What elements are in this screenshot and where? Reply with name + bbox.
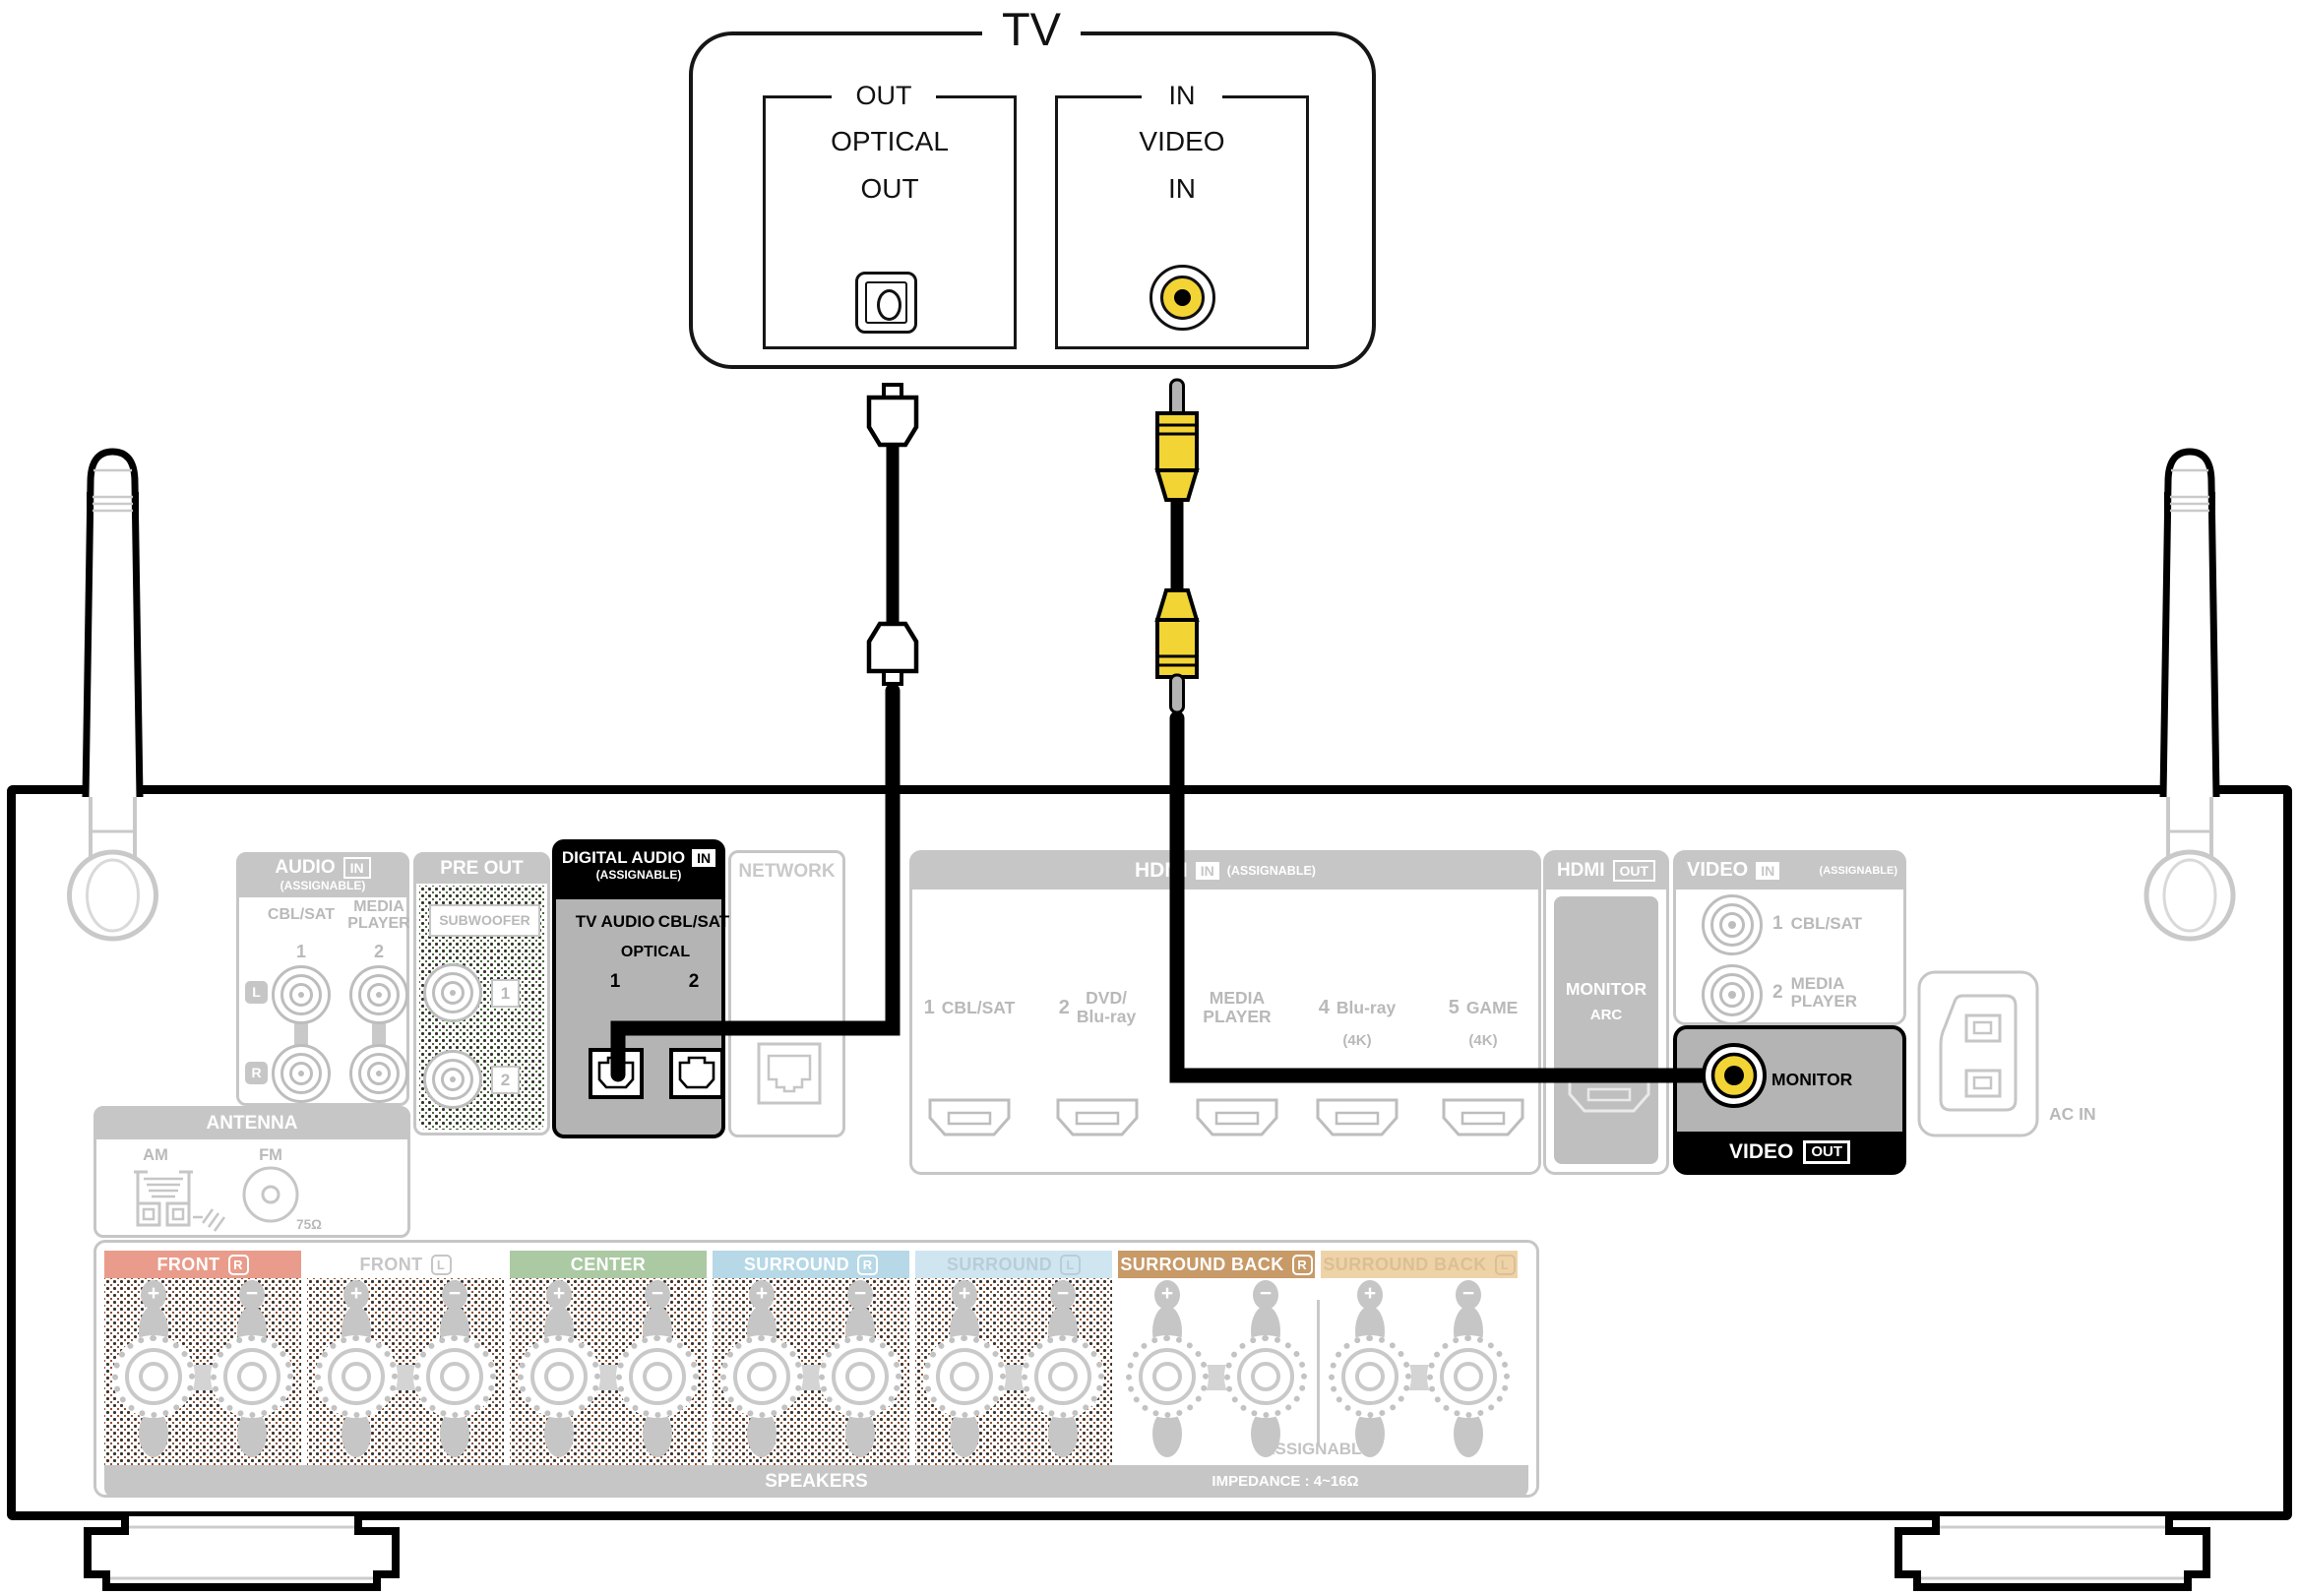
subwoofer-jack-1 bbox=[423, 963, 482, 1022]
video-in-jack-2 bbox=[1702, 964, 1763, 1025]
terminal-area: + − bbox=[307, 1278, 504, 1465]
antenna-header: ANTENNA bbox=[95, 1108, 408, 1139]
binding-post-positive: + bbox=[512, 1280, 606, 1465]
hdmi-connector-icon bbox=[1440, 1097, 1526, 1138]
toslink-plug-down bbox=[869, 624, 916, 684]
terminal-area: + − bbox=[915, 1278, 1112, 1465]
tv-optical-label-line1: OPTICAL bbox=[763, 126, 1017, 157]
speaker-channel-header: FRONT L bbox=[307, 1251, 504, 1278]
hdmi-port-dvd-bluray: 2 DVD/Blu-ray bbox=[1028, 987, 1166, 1050]
rca-jack-cbl-sat-right bbox=[272, 1044, 331, 1103]
channel-badge: R bbox=[857, 1255, 878, 1275]
digital-audio-in-header: DIGITAL AUDIO IN (ASSIGNABLE) bbox=[555, 842, 722, 899]
binding-post-positive: + bbox=[106, 1280, 201, 1465]
subwoofer-jack-2 bbox=[423, 1050, 482, 1109]
section-hdmi-out: HDMI OUT MONITOR ARC bbox=[1543, 850, 1669, 1175]
port-sub: (4K) bbox=[1414, 1032, 1552, 1050]
network-title: NETWORK bbox=[731, 861, 842, 883]
chassis-foot-left bbox=[88, 1516, 396, 1587]
audio-in-header: AUDIO IN (ASSIGNABLE) bbox=[238, 854, 407, 897]
hdmi-connector-icon bbox=[1054, 1097, 1141, 1138]
surround-back-divider bbox=[1317, 1300, 1320, 1445]
hdmi-port-bluray-4k: 4 Blu-ray (4K) bbox=[1288, 987, 1426, 1050]
speaker-channel-header: FRONT R bbox=[104, 1251, 301, 1278]
port-number: 1 bbox=[924, 997, 935, 1019]
tv-optical-out-port-icon bbox=[855, 272, 917, 334]
port-number: 2 bbox=[1772, 982, 1783, 1004]
monitor-jack-label: MONITOR bbox=[1771, 1070, 1904, 1090]
left-channel-badge: L bbox=[245, 981, 268, 1004]
channel-label: SURROUND bbox=[947, 1255, 1052, 1275]
port-number: 1 bbox=[1772, 913, 1783, 935]
speaker-channel-header: CENTER bbox=[510, 1251, 707, 1278]
tv-receiver-connection-diagram: AUDIO IN (ASSIGNABLE) CBL/SAT MEDIA PLAY… bbox=[0, 0, 2299, 1596]
port-label: MEDIA bbox=[1210, 988, 1265, 1008]
video-in-header: VIDEO IN (ASSIGNABLE) bbox=[1675, 852, 1904, 890]
toslink-plug-up bbox=[869, 385, 916, 445]
hdmi-connector-icon bbox=[1566, 1074, 1652, 1115]
digital-audio-title: DIGITAL AUDIO bbox=[562, 848, 685, 868]
speaker-channel-front-l: FRONT L + − bbox=[307, 1251, 504, 1465]
speaker-channel-surround-back-r: SURROUND BACK R + − bbox=[1118, 1251, 1315, 1465]
am-label: AM bbox=[126, 1146, 185, 1165]
in-badge: IN bbox=[692, 849, 715, 867]
hdmi-connector-icon bbox=[1194, 1097, 1280, 1138]
assignable-note: (ASSIGNABLE) bbox=[238, 879, 407, 893]
hdmi-connector-icon bbox=[1314, 1097, 1400, 1138]
hdmi-title: HDMI bbox=[1135, 859, 1188, 883]
monitor-label: MONITOR bbox=[1554, 979, 1658, 1000]
tv-title: TV bbox=[982, 0, 1081, 61]
channel-label: SURROUND bbox=[744, 1255, 849, 1275]
hdmi-connector-icon bbox=[926, 1097, 1013, 1138]
channel-badge: L bbox=[431, 1255, 452, 1275]
channel-badge: R bbox=[228, 1255, 249, 1275]
binding-post-negative: − bbox=[1218, 1280, 1313, 1465]
assignable-note: (ASSIGNABLE) bbox=[1820, 865, 1897, 877]
in-badge: IN bbox=[1196, 862, 1219, 880]
channel-badge: L bbox=[1495, 1255, 1516, 1275]
channel-badge: L bbox=[1060, 1255, 1081, 1275]
right-channel-badge: R bbox=[245, 1062, 268, 1084]
tv-video-label-line1: VIDEO bbox=[1055, 126, 1309, 157]
binding-post-negative: − bbox=[1016, 1280, 1110, 1465]
label-line: MEDIA bbox=[334, 898, 424, 915]
ac-inlet-icon bbox=[1917, 970, 2039, 1137]
rca-jack-media-right bbox=[349, 1044, 408, 1103]
pre-out-header: PRE OUT bbox=[415, 854, 548, 884]
port-label: GAME bbox=[1466, 998, 1519, 1017]
speakers-footer-bar: SPEAKERS IMPEDANCE : 4~16Ω bbox=[104, 1465, 1528, 1498]
video-title: VIDEO bbox=[1729, 1140, 1793, 1164]
binding-post-positive: + bbox=[1323, 1280, 1417, 1465]
audio-in-title: AUDIO bbox=[275, 857, 335, 879]
assignable-note: (ASSIGNABLE) bbox=[1227, 864, 1316, 878]
port-sub bbox=[1028, 1032, 1166, 1050]
port-label: DVD/ bbox=[1086, 988, 1127, 1008]
toslink-jack-2 bbox=[669, 1048, 724, 1099]
port-label: MEDIA bbox=[1791, 974, 1845, 993]
am-terminal-icon bbox=[132, 1170, 195, 1227]
ethernet-port-icon bbox=[757, 1042, 822, 1105]
section-digital-audio-in: DIGITAL AUDIO IN (ASSIGNABLE) TV AUDIO C… bbox=[552, 839, 725, 1138]
assignable-note: (ASSIGNABLE) bbox=[555, 868, 722, 883]
terminal-area: + − bbox=[1118, 1278, 1315, 1465]
fm-coax-jack-icon bbox=[240, 1164, 301, 1225]
binding-post-negative: − bbox=[1421, 1280, 1516, 1465]
cbl-sat-label: CBL/SAT bbox=[643, 912, 745, 932]
port-label: CBL/SAT bbox=[1791, 915, 1862, 933]
tv-video-in-rca-jack bbox=[1149, 265, 1215, 331]
tv-optical-label-line2: OUT bbox=[763, 173, 1017, 205]
port-number: 5 bbox=[1449, 997, 1460, 1019]
channel-label: SURROUND BACK bbox=[1323, 1255, 1486, 1275]
section-speakers: FRONT R + − FRONT L + − CENTER bbox=[93, 1240, 1539, 1498]
section-pre-out: PRE OUT SUBWOOFER 1 2 bbox=[413, 852, 550, 1136]
speaker-channel-surround-back-l: SURROUND BACK L + − bbox=[1321, 1251, 1518, 1465]
rca-jack-media-left bbox=[349, 965, 408, 1024]
binding-post-positive: + bbox=[917, 1280, 1012, 1465]
channel-badge: R bbox=[1292, 1255, 1313, 1275]
hdmi-port-media-player: MEDIAPLAYER bbox=[1168, 987, 1306, 1050]
optical-label: OPTICAL bbox=[577, 944, 734, 961]
rca-plug-up bbox=[1157, 380, 1197, 500]
section-audio-in: AUDIO IN (ASSIGNABLE) CBL/SAT MEDIA PLAY… bbox=[236, 852, 409, 1106]
binding-post-positive: + bbox=[309, 1280, 404, 1465]
section-hdmi-in: HDMI IN (ASSIGNABLE) 1 CBL/SAT 2 DVD/Blu… bbox=[909, 850, 1541, 1175]
pre-out-title: PRE OUT bbox=[440, 858, 523, 879]
binding-post-positive: + bbox=[715, 1280, 809, 1465]
section-video-in: VIDEO IN (ASSIGNABLE) 1 CBL/SAT 2 MEDIAP… bbox=[1673, 850, 1906, 1025]
terminal-area: + − bbox=[104, 1278, 301, 1465]
binding-post-negative: − bbox=[205, 1280, 299, 1465]
antenna-title: ANTENNA bbox=[207, 1113, 298, 1134]
speaker-channel-front-r: FRONT R + − bbox=[104, 1251, 301, 1465]
video-title: VIDEO bbox=[1687, 859, 1748, 882]
binding-post-positive: + bbox=[1120, 1280, 1214, 1465]
port-sub bbox=[901, 1032, 1038, 1050]
port-label: PLAYER bbox=[1791, 992, 1857, 1011]
port-number: 2 bbox=[1059, 997, 1070, 1019]
speaker-channel-center: CENTER + − bbox=[510, 1251, 707, 1465]
hdmi-in-header: HDMI IN (ASSIGNABLE) bbox=[911, 852, 1539, 890]
speaker-channel-header: SURROUND R bbox=[713, 1251, 909, 1278]
port-label: Blu-ray bbox=[1336, 998, 1396, 1017]
monitor-video-out-box: MONITOR VIDEO OUT bbox=[1673, 1025, 1906, 1175]
fm-label: FM bbox=[240, 1146, 301, 1165]
binding-post-negative: − bbox=[813, 1280, 907, 1465]
out-badge: OUT bbox=[1613, 860, 1656, 882]
channel-label: CENTER bbox=[571, 1255, 646, 1275]
tv-in-group-label: IN bbox=[1142, 79, 1222, 112]
speaker-channel-header: SURROUND BACK R bbox=[1118, 1251, 1315, 1278]
toslink-jack-1 bbox=[589, 1048, 644, 1099]
in-badge: IN bbox=[343, 857, 371, 879]
ground-symbol-icon bbox=[193, 1203, 230, 1235]
video-in-port1-label: 1 CBL/SAT bbox=[1772, 913, 1862, 935]
speaker-channel-header: SURROUND BACK L bbox=[1321, 1251, 1518, 1278]
out-badge: OUT bbox=[1803, 1140, 1850, 1164]
hdmi-title: HDMI bbox=[1557, 860, 1605, 882]
section-antenna: ANTENNA AM FM 75Ω bbox=[93, 1106, 410, 1238]
hdmi-out-monitor-area: MONITOR ARC bbox=[1554, 896, 1658, 1164]
speaker-channel-header: SURROUND L bbox=[915, 1251, 1112, 1278]
channel-label: SURROUND BACK bbox=[1120, 1255, 1283, 1275]
port-sub: (4K) bbox=[1288, 1032, 1426, 1050]
arc-label: ARC bbox=[1554, 1007, 1658, 1023]
fm-impedance-label: 75Ω bbox=[280, 1217, 339, 1232]
hdmi-port-game-4k: 5 GAME (4K) bbox=[1414, 987, 1552, 1050]
channel-label: FRONT bbox=[360, 1255, 423, 1275]
in-badge: IN bbox=[1756, 862, 1779, 880]
video-in-port2-label: 2 MEDIAPLAYER bbox=[1772, 975, 1857, 1011]
audio-in-number-2: 2 bbox=[334, 942, 424, 962]
port-number: 4 bbox=[1319, 997, 1330, 1019]
ac-in-label: AC IN bbox=[2049, 1104, 2096, 1125]
impedance-label: IMPEDANCE : 4~16Ω bbox=[1079, 1473, 1492, 1490]
binding-post-negative: − bbox=[610, 1280, 705, 1465]
binding-post-negative: − bbox=[407, 1280, 502, 1465]
tv-video-label-line2: IN bbox=[1055, 173, 1309, 205]
subwoofer-number-1: 1 bbox=[491, 979, 520, 1008]
video-in-jack-1 bbox=[1702, 894, 1763, 955]
subwoofer-number-2: 2 bbox=[491, 1066, 520, 1094]
speaker-channel-surround-r: SURROUND R + − bbox=[713, 1251, 909, 1465]
label-line: PLAYER bbox=[334, 915, 424, 932]
port-sub bbox=[1168, 1032, 1306, 1050]
section-network: NETWORK bbox=[728, 850, 845, 1137]
port-label: PLAYER bbox=[1203, 1007, 1271, 1026]
optical-number-2: 2 bbox=[643, 971, 745, 993]
port-label: Blu-ray bbox=[1077, 1007, 1136, 1026]
tv-out-group-label: OUT bbox=[832, 79, 936, 112]
subwoofer-label: SUBWOOFER bbox=[429, 904, 540, 937]
hdmi-out-header: HDMI OUT bbox=[1545, 852, 1667, 890]
terminal-area: + − bbox=[1321, 1278, 1518, 1465]
speaker-channel-surround-l: SURROUND L + − bbox=[915, 1251, 1112, 1465]
hdmi-port-cbl-sat: 1 CBL/SAT bbox=[901, 987, 1038, 1050]
port-label: CBL/SAT bbox=[942, 998, 1016, 1017]
terminal-area: + − bbox=[713, 1278, 909, 1465]
rca-plug-down bbox=[1157, 590, 1197, 712]
terminal-area: + − bbox=[510, 1278, 707, 1465]
chassis-foot-right bbox=[1898, 1516, 2206, 1587]
rca-jack-cbl-sat-left bbox=[272, 965, 331, 1024]
video-out-footer: VIDEO OUT bbox=[1676, 1132, 1903, 1172]
channel-label: FRONT bbox=[157, 1255, 220, 1275]
audio-in-media-player-label: MEDIA PLAYER bbox=[334, 898, 424, 932]
